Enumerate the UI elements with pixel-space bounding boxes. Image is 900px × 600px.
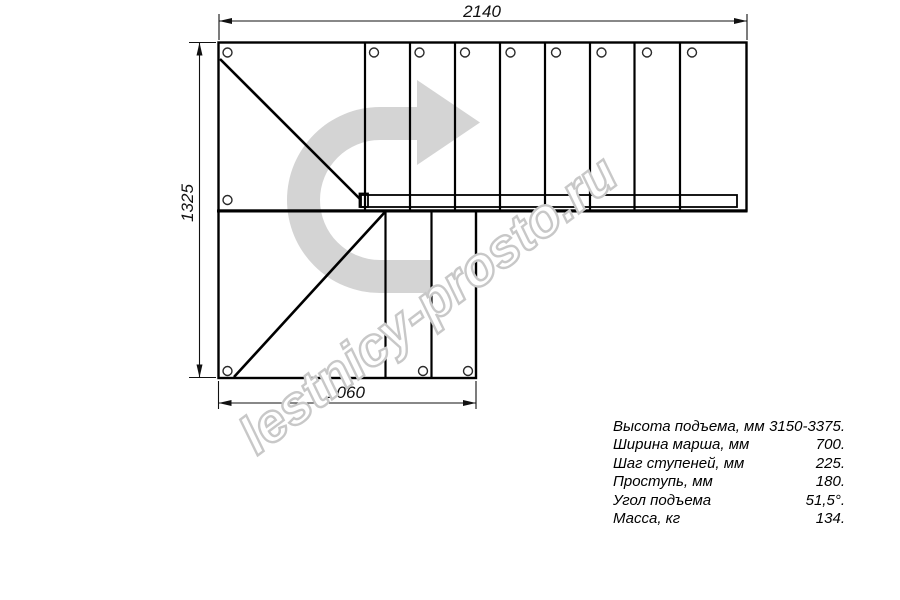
spec-value: 225. <box>816 455 845 473</box>
spec-row-height: Высота подъема, мм 3150-3375. <box>613 418 845 436</box>
spec-value: 51,5°. <box>806 492 845 510</box>
hole-icon <box>223 196 232 205</box>
spec-label: Масса, кг <box>613 510 680 528</box>
hole-icon <box>688 48 697 57</box>
hole-icon <box>597 48 606 57</box>
spec-value: 180. <box>816 473 845 491</box>
top-dimension-label: 2140 <box>462 2 501 21</box>
hole-icon <box>415 48 424 57</box>
spec-row-tread: Проступь, мм 180. <box>613 473 845 491</box>
hole-icon <box>506 48 515 57</box>
specs-table: Высота подъема, мм 3150-3375. Ширина мар… <box>613 418 845 528</box>
hole-icon <box>552 48 561 57</box>
spec-value: 700. <box>816 436 845 454</box>
hole-icon <box>223 48 232 57</box>
spec-value: 134. <box>816 510 845 528</box>
spec-label: Ширина марша, мм <box>613 436 749 454</box>
spec-row-flight-width: Ширина марша, мм 700. <box>613 436 845 454</box>
spec-label: Шаг ступеней, мм <box>613 455 744 473</box>
hole-icon <box>464 367 473 376</box>
spec-label: Высота подъема, мм <box>613 418 765 436</box>
hole-icon <box>643 48 652 57</box>
spec-label: Проступь, мм <box>613 473 713 491</box>
staircase-plan-page: 2140 1325 1060 lestnicy-prosto.ru Высот <box>0 0 900 600</box>
left-dimension-label: 1325 <box>178 184 197 222</box>
spec-label: Угол подъема <box>613 492 711 510</box>
spec-value: 3150-3375. <box>769 418 845 436</box>
spec-row-mass: Масса, кг 134. <box>613 510 845 528</box>
hole-icon <box>223 367 232 376</box>
hole-icon <box>419 367 428 376</box>
hole-icon <box>370 48 379 57</box>
hole-icon <box>461 48 470 57</box>
spec-row-step-pitch: Шаг ступеней, мм 225. <box>613 455 845 473</box>
spec-row-angle: Угол подъема 51,5°. <box>613 492 845 510</box>
